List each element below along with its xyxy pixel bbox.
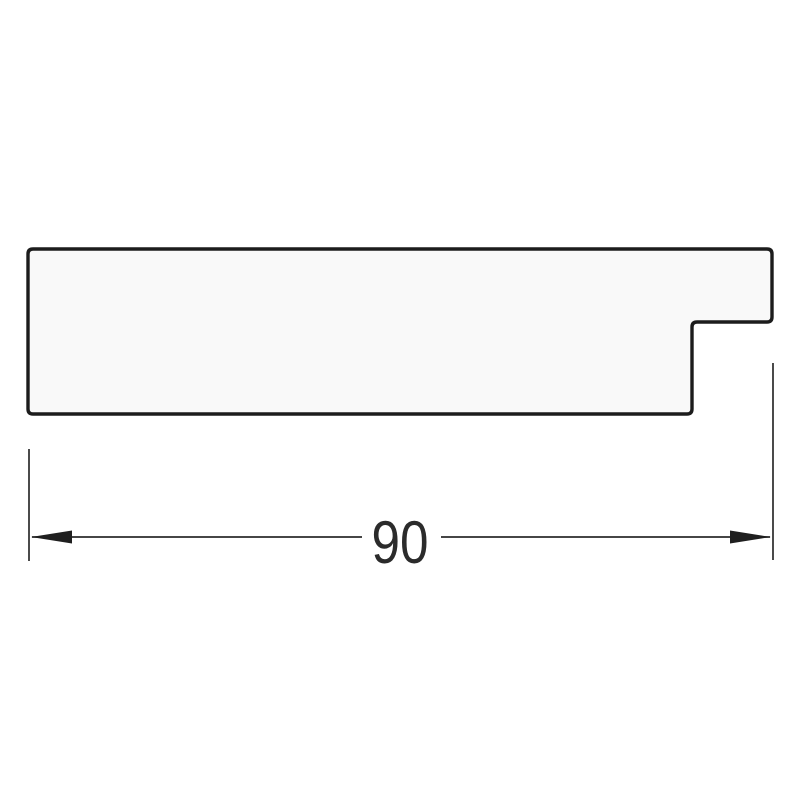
technical-drawing-canvas: 90 <box>0 0 800 800</box>
dimension-value-label: 90 <box>372 509 429 576</box>
dimension-arrow-left-icon <box>31 531 72 544</box>
dimension-arrow-right-icon <box>730 531 771 544</box>
profile-shape-group <box>28 249 772 414</box>
profile-drawing-svg: 90 <box>0 0 800 800</box>
profile-outline <box>28 249 772 414</box>
